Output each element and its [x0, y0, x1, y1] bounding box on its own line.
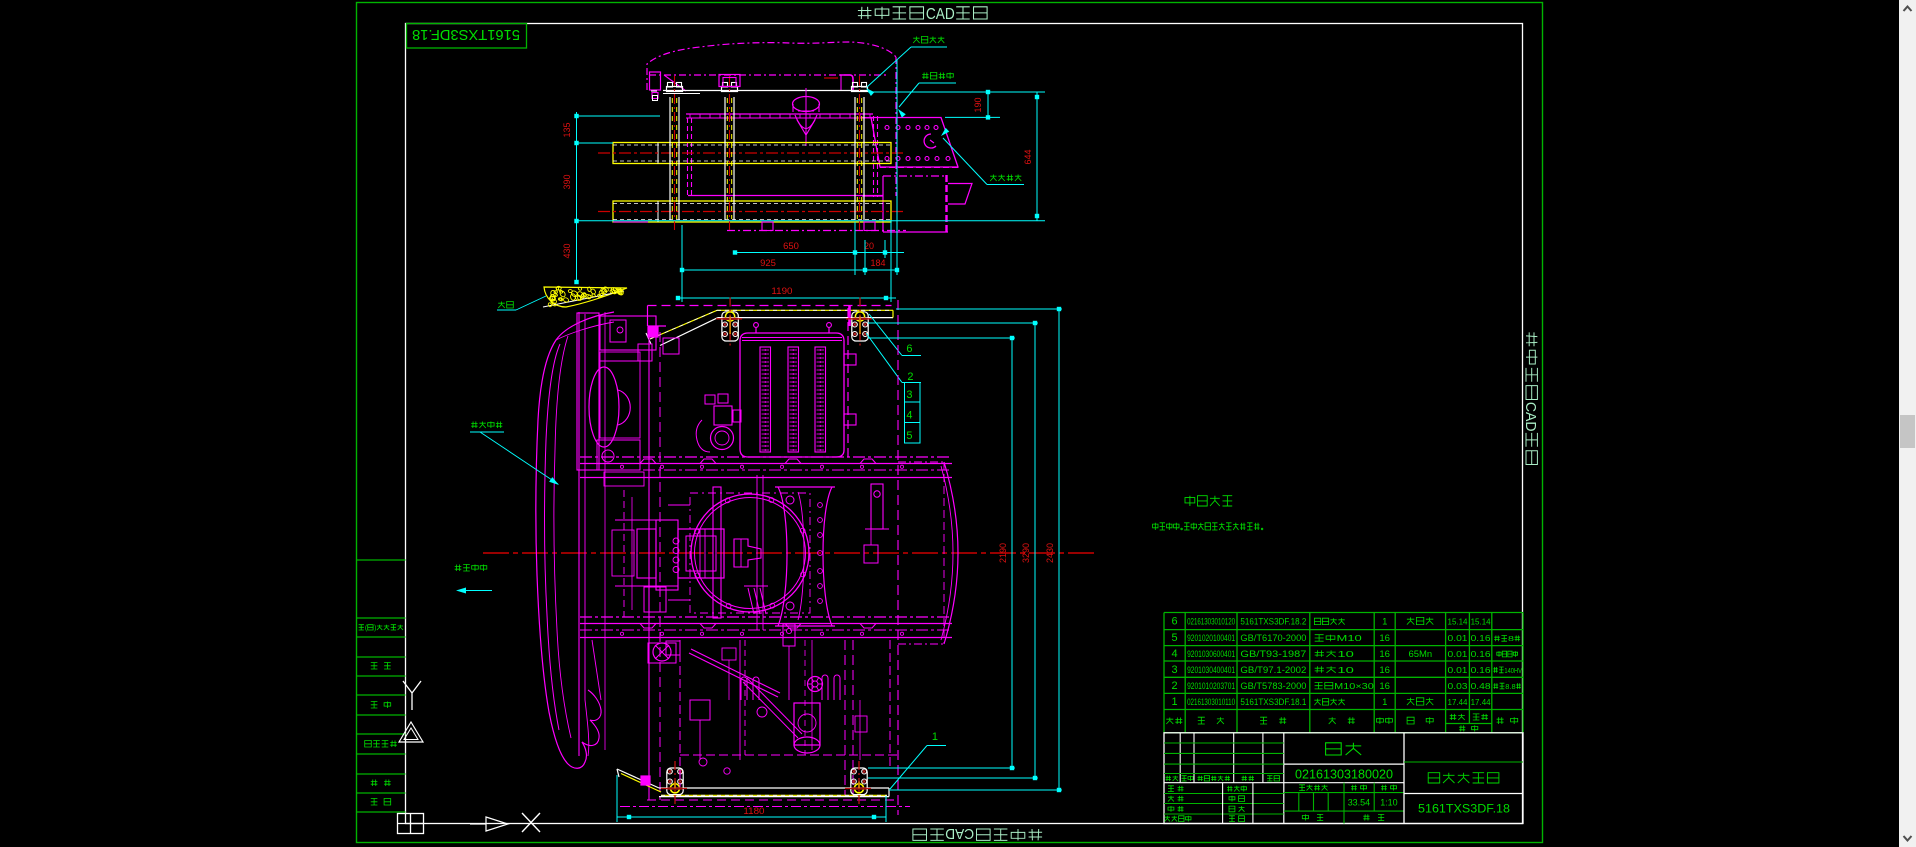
svg-text:430: 430 — [562, 244, 572, 259]
svg-text:10: 10 — [1337, 665, 1354, 675]
svg-text:6: 6 — [1172, 616, 1178, 628]
svg-text:17.44: 17.44 — [1448, 697, 1468, 707]
svg-text:2: 2 — [907, 371, 913, 383]
svg-text:15.14: 15.14 — [1448, 617, 1468, 627]
svg-text:3: 3 — [906, 389, 912, 401]
svg-text:5: 5 — [906, 430, 912, 442]
svg-text:M10×30: M10×30 — [1334, 681, 1374, 691]
svg-text:M10: M10 — [1337, 633, 1363, 643]
svg-text:644: 644 — [1023, 150, 1033, 165]
svg-text:4: 4 — [906, 410, 912, 422]
svg-text:16: 16 — [1379, 649, 1390, 660]
svg-text:3290: 3290 — [1021, 543, 1031, 563]
svg-text:65Mn: 65Mn — [1409, 649, 1433, 660]
svg-text:0.01: 0.01 — [1448, 649, 1468, 659]
svg-text:): ) — [374, 625, 376, 632]
svg-text:CAD: CAD — [945, 825, 974, 842]
svg-text:GB/T97.1-2002: GB/T97.1-2002 — [1240, 665, 1306, 676]
svg-text:8.8: 8.8 — [1505, 682, 1515, 691]
svg-text:CAD: CAD — [1522, 402, 1539, 432]
svg-text:190: 190 — [973, 98, 983, 113]
svg-text:0.48: 0.48 — [1471, 681, 1491, 691]
svg-text:135: 135 — [562, 123, 572, 138]
svg-text:2430: 2430 — [1045, 543, 1055, 563]
svg-text:02161303010110: 02161303010110 — [1187, 697, 1235, 707]
svg-text:GB/T5783-2000: GB/T5783-2000 — [1240, 681, 1306, 692]
svg-text:1180: 1180 — [743, 806, 764, 817]
svg-text:0.01: 0.01 — [1448, 665, 1468, 675]
svg-text:9201030600401: 9201030600401 — [1187, 649, 1235, 659]
svg-text:GB/T6170-2000: GB/T6170-2000 — [1240, 633, 1306, 644]
svg-text:5161TXS3DF.18.2: 5161TXS3DF.18.2 — [1240, 617, 1306, 628]
svg-text:184: 184 — [871, 258, 886, 268]
svg-text:6: 6 — [906, 343, 912, 355]
svg-text:15.14: 15.14 — [1471, 617, 1491, 627]
svg-text:1: 1 — [1382, 617, 1387, 628]
svg-text:5161TXS3DF.18: 5161TXS3DF.18 — [1418, 802, 1510, 816]
svg-text:3: 3 — [1172, 664, 1178, 676]
svg-text:16: 16 — [1379, 681, 1390, 692]
svg-text:17.44: 17.44 — [1471, 697, 1491, 707]
svg-text:GB/T93-1987: GB/T93-1987 — [1240, 649, 1306, 660]
svg-text:9201030400401: 9201030400401 — [1187, 665, 1235, 675]
svg-text:0.16: 0.16 — [1471, 665, 1491, 675]
svg-text:925: 925 — [760, 258, 776, 269]
svg-text:650: 650 — [783, 241, 799, 252]
svg-text:1:10: 1:10 — [1380, 798, 1398, 808]
svg-text:1: 1 — [1382, 697, 1387, 708]
svg-text:0.16: 0.16 — [1471, 633, 1491, 643]
svg-text:0.03: 0.03 — [1448, 681, 1468, 691]
svg-text:0.16: 0.16 — [1471, 649, 1491, 659]
svg-text:2190: 2190 — [998, 543, 1008, 563]
svg-text:4: 4 — [1172, 648, 1178, 660]
svg-text:33.54: 33.54 — [1348, 798, 1371, 808]
svg-text:16: 16 — [1379, 665, 1390, 676]
svg-text:CAD: CAD — [926, 6, 955, 23]
svg-text:5: 5 — [1172, 632, 1178, 644]
svg-text:5161TXS3DF.18.1: 5161TXS3DF.18.1 — [1240, 697, 1306, 708]
svg-text:0.01: 0.01 — [1448, 633, 1468, 643]
svg-text:2: 2 — [1172, 680, 1178, 692]
svg-text:9201020100401: 9201020100401 — [1187, 633, 1235, 643]
svg-text:02161303010120: 02161303010120 — [1187, 617, 1235, 627]
svg-text:390: 390 — [562, 175, 572, 190]
svg-text:8: 8 — [1508, 634, 1514, 643]
svg-text:5161TXS3DF.18: 5161TXS3DF.18 — [412, 26, 520, 43]
svg-text:16: 16 — [1379, 633, 1390, 644]
svg-text:9201010203701: 9201010203701 — [1187, 681, 1235, 691]
svg-text:1: 1 — [1172, 696, 1178, 708]
svg-text:10: 10 — [1337, 649, 1354, 659]
svg-text:140HV: 140HV — [1504, 666, 1522, 675]
svg-text:1: 1 — [932, 731, 938, 743]
svg-text:1190: 1190 — [771, 286, 792, 297]
svg-text:02161303180020: 02161303180020 — [1295, 768, 1393, 782]
